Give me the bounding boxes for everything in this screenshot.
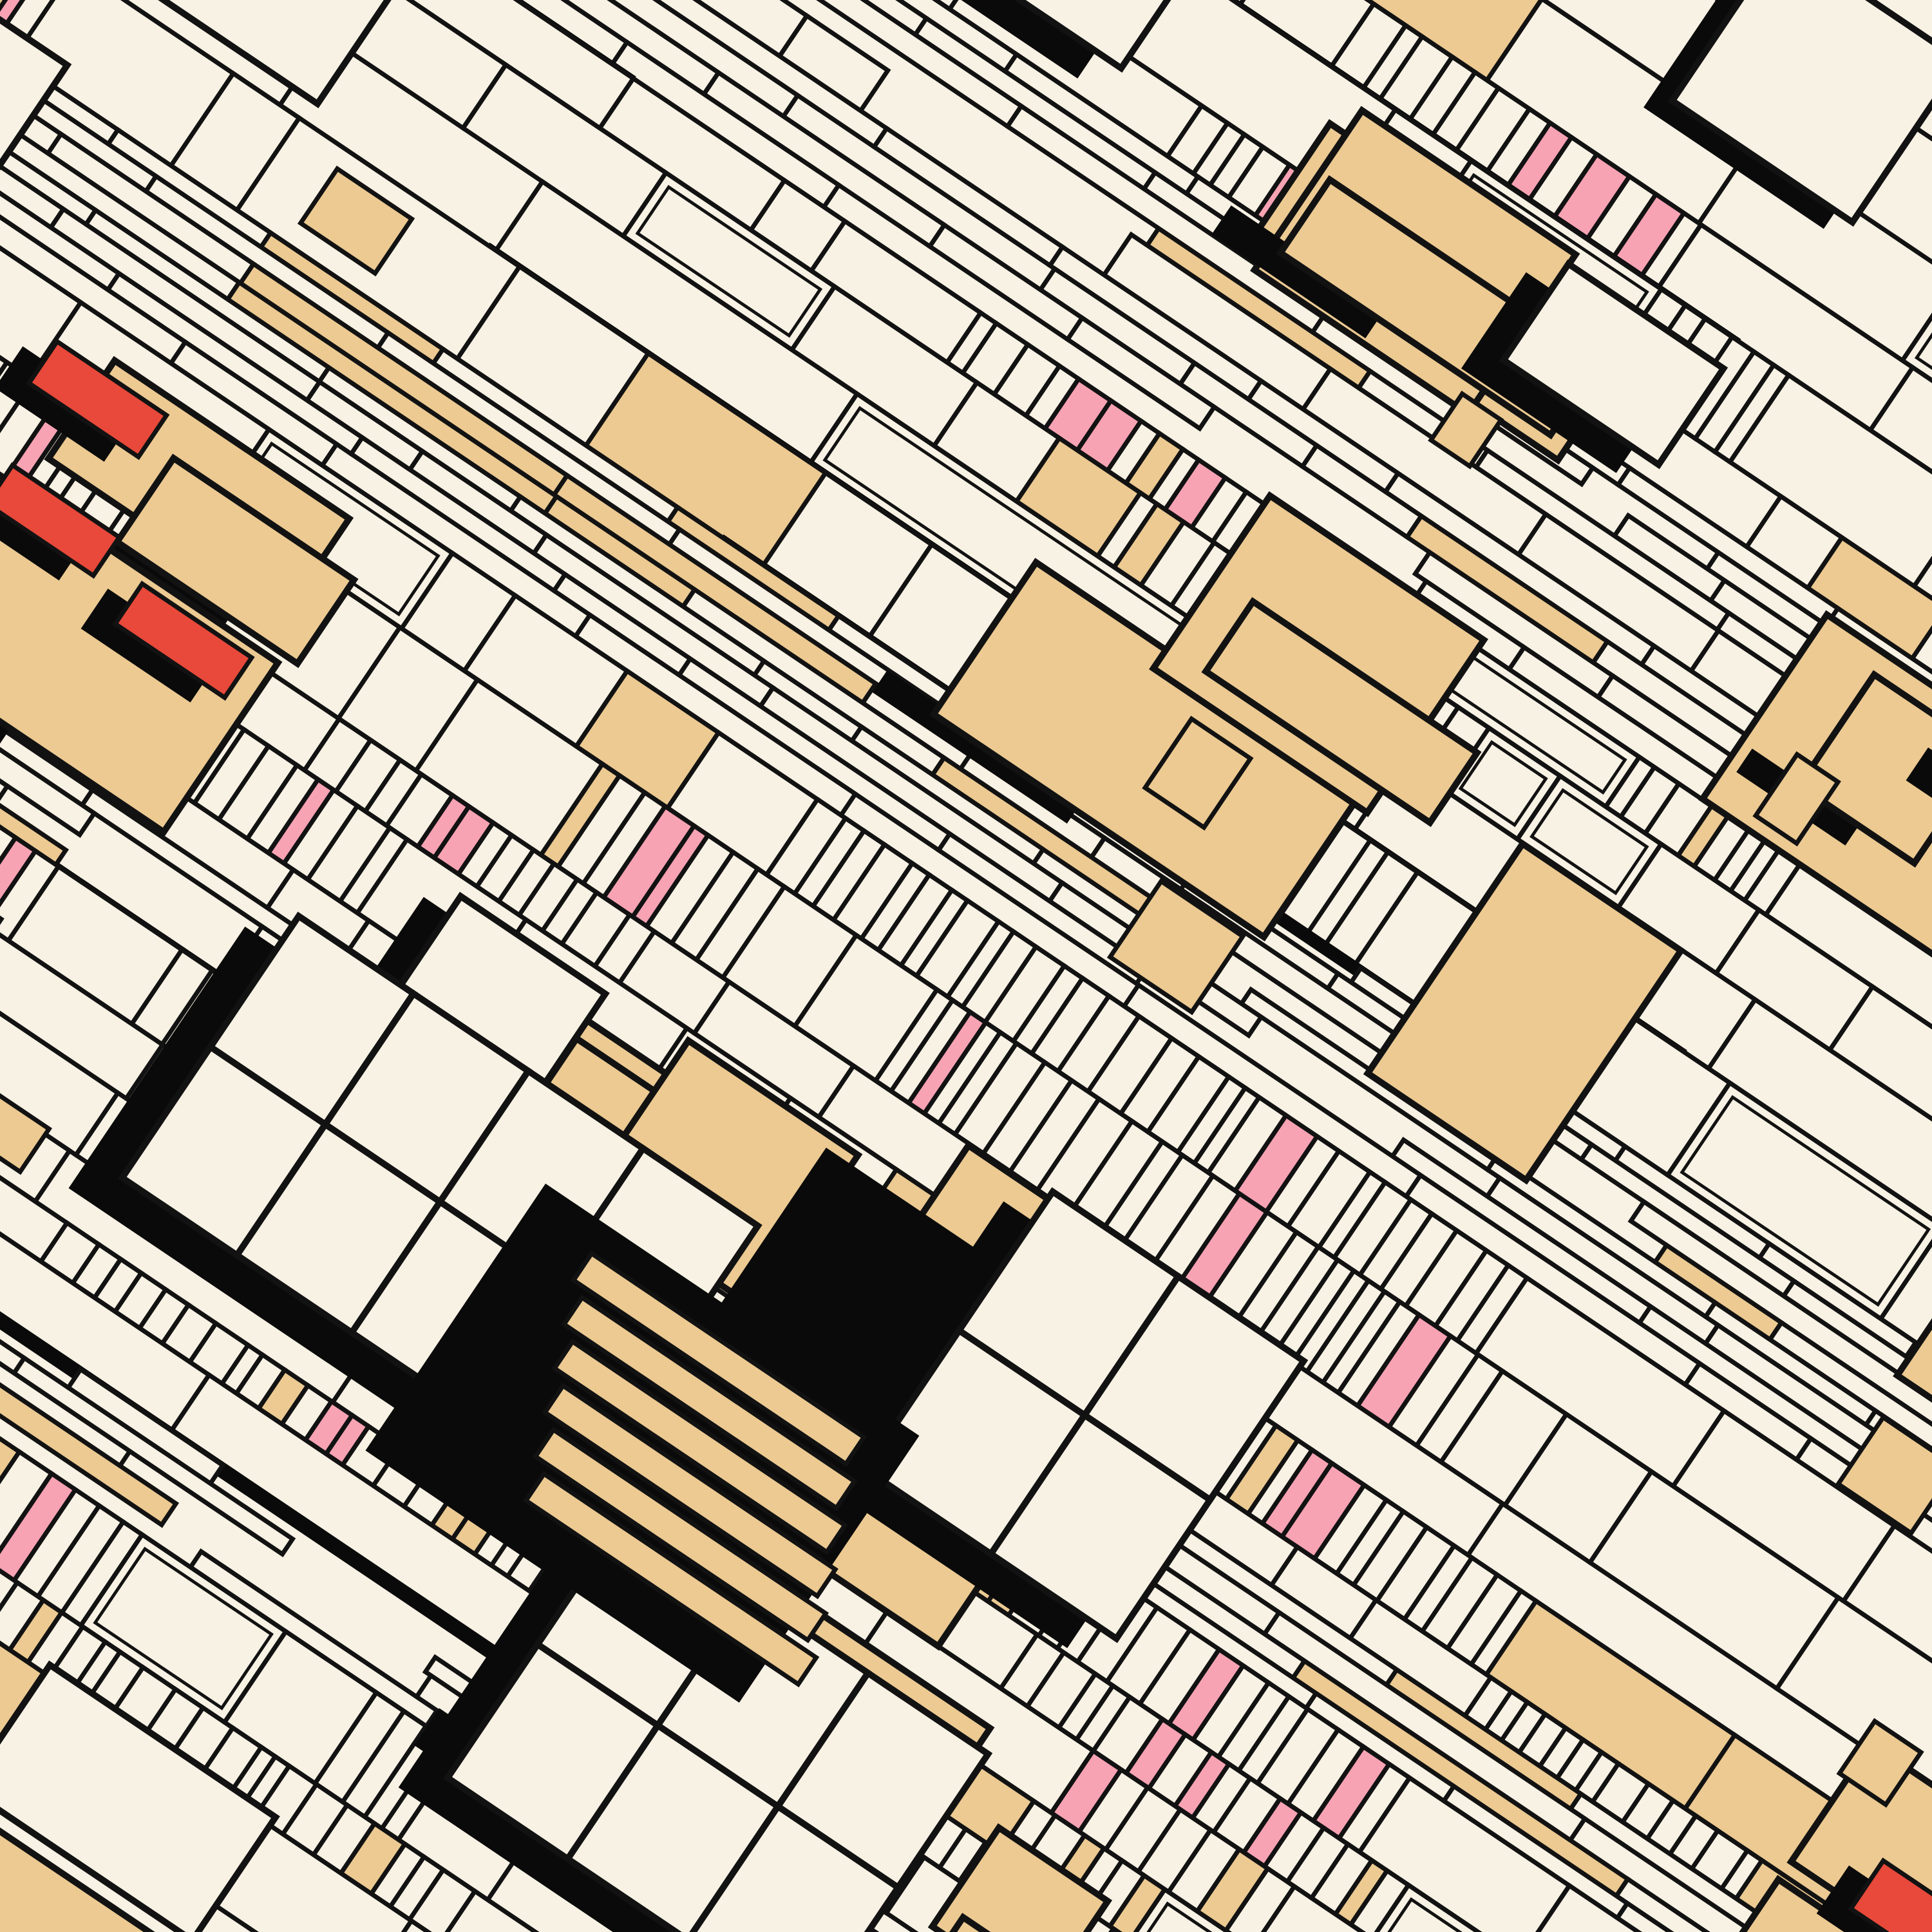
artwork-canvas bbox=[0, 0, 1932, 1932]
abstract-artwork bbox=[0, 0, 1932, 1932]
